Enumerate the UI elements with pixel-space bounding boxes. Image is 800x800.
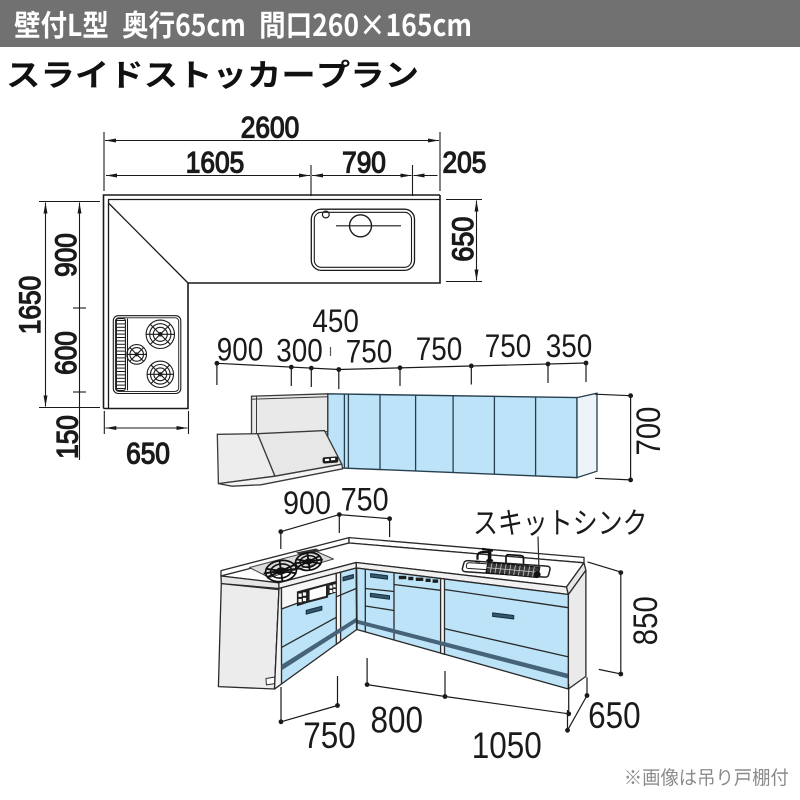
svg-text:350: 350 — [546, 328, 593, 364]
svg-text:750: 750 — [485, 328, 532, 364]
svg-text:900: 900 — [217, 332, 264, 368]
svg-text:700: 700 — [630, 407, 668, 456]
svg-text:750: 750 — [341, 482, 389, 518]
svg-text:1650: 1650 — [14, 276, 47, 334]
svg-text:300: 300 — [276, 333, 323, 369]
svg-text:150: 150 — [51, 415, 84, 459]
svg-text:1605: 1605 — [186, 147, 244, 180]
svg-text:205: 205 — [443, 147, 487, 180]
svg-text:600: 600 — [50, 331, 83, 375]
svg-text:900: 900 — [50, 233, 83, 277]
svg-text:750: 750 — [303, 715, 356, 756]
svg-text:2600: 2600 — [241, 112, 299, 145]
svg-text:1050: 1050 — [472, 725, 542, 766]
svg-text:650: 650 — [447, 217, 480, 262]
svg-text:650: 650 — [588, 695, 641, 736]
svg-text:650: 650 — [126, 438, 170, 471]
svg-text:750: 750 — [346, 334, 393, 370]
svg-text:850: 850 — [627, 596, 665, 645]
svg-text:900: 900 — [283, 485, 331, 521]
svg-text:750: 750 — [416, 331, 463, 367]
svg-text:800: 800 — [370, 700, 423, 741]
svg-text:790: 790 — [342, 147, 386, 180]
